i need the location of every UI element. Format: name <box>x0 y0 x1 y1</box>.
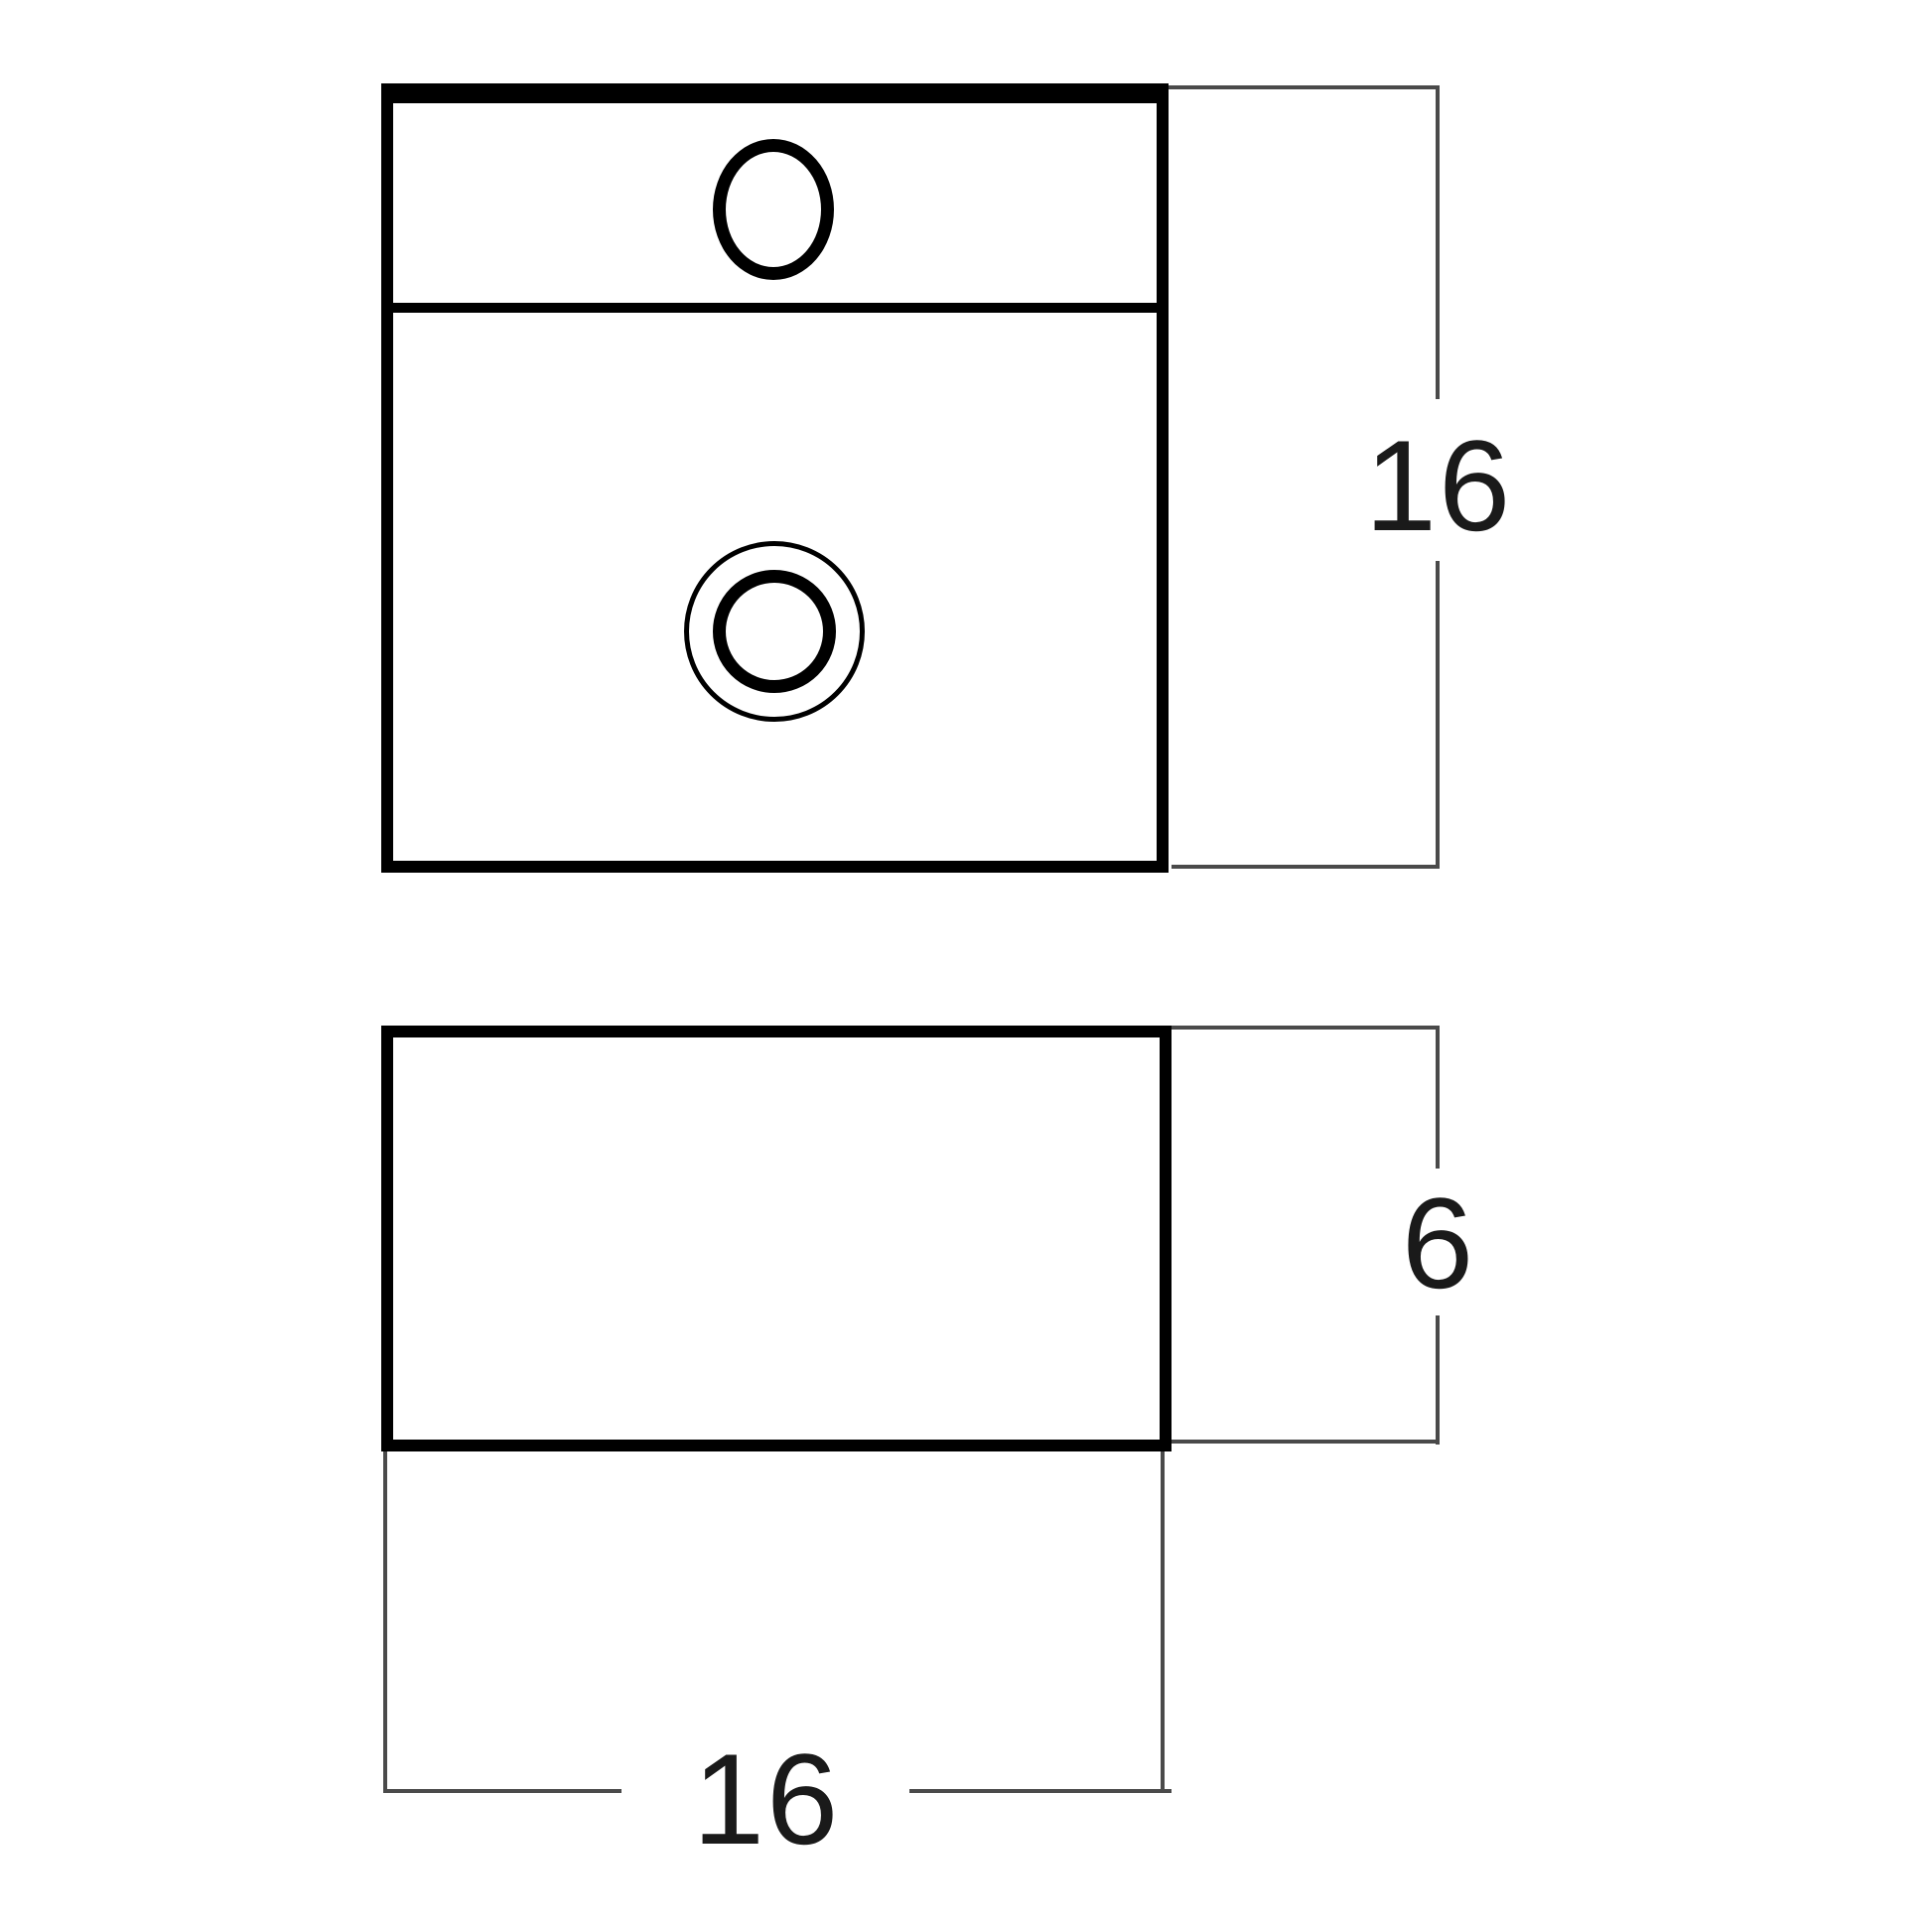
side-view-outline <box>381 1026 1172 1451</box>
drain-inner-ring <box>713 570 836 693</box>
side-height-dimension-label: 6 <box>1402 1178 1475 1308</box>
plan-depth-dimension-label: 16 <box>1365 421 1513 550</box>
plan-depth-extension-line-bottom <box>1172 865 1440 869</box>
side-width-dimension-line-right <box>909 1789 1172 1793</box>
faucet-hole <box>713 139 834 280</box>
side-height-dimension-line-lower <box>1436 1315 1440 1445</box>
plan-depth-extension-line-top <box>1169 85 1440 89</box>
plan-view-deck-divider-line <box>381 303 1169 313</box>
sink-dimension-drawing: 16 6 16 <box>0 0 1932 1932</box>
side-width-extension-line-left <box>383 1451 387 1793</box>
plan-depth-dimension-line-lower <box>1436 561 1440 869</box>
side-height-extension-line-bottom <box>1172 1440 1440 1444</box>
side-width-extension-line-right <box>1161 1451 1165 1793</box>
side-width-dimension-line-left <box>385 1789 621 1793</box>
side-width-dimension-label: 16 <box>693 1734 841 1863</box>
side-height-extension-line-top <box>1172 1026 1440 1030</box>
plan-depth-dimension-line-upper <box>1436 85 1440 399</box>
side-height-dimension-line-upper <box>1436 1028 1440 1169</box>
